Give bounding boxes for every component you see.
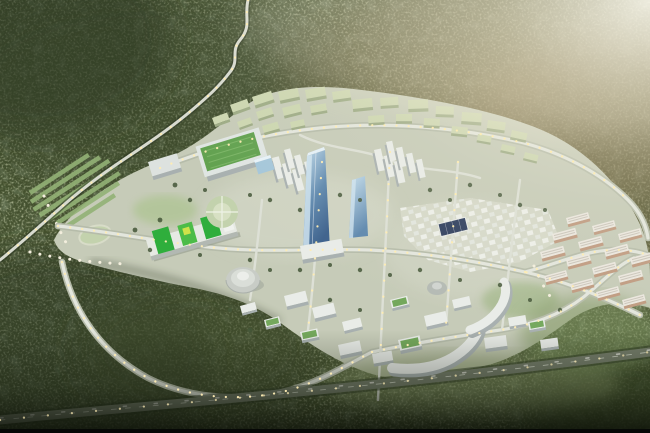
letterbox-bar <box>0 429 650 433</box>
aerial-render <box>0 0 650 433</box>
bottom-shadow <box>0 330 650 433</box>
aerial-render-canvas <box>0 0 650 433</box>
